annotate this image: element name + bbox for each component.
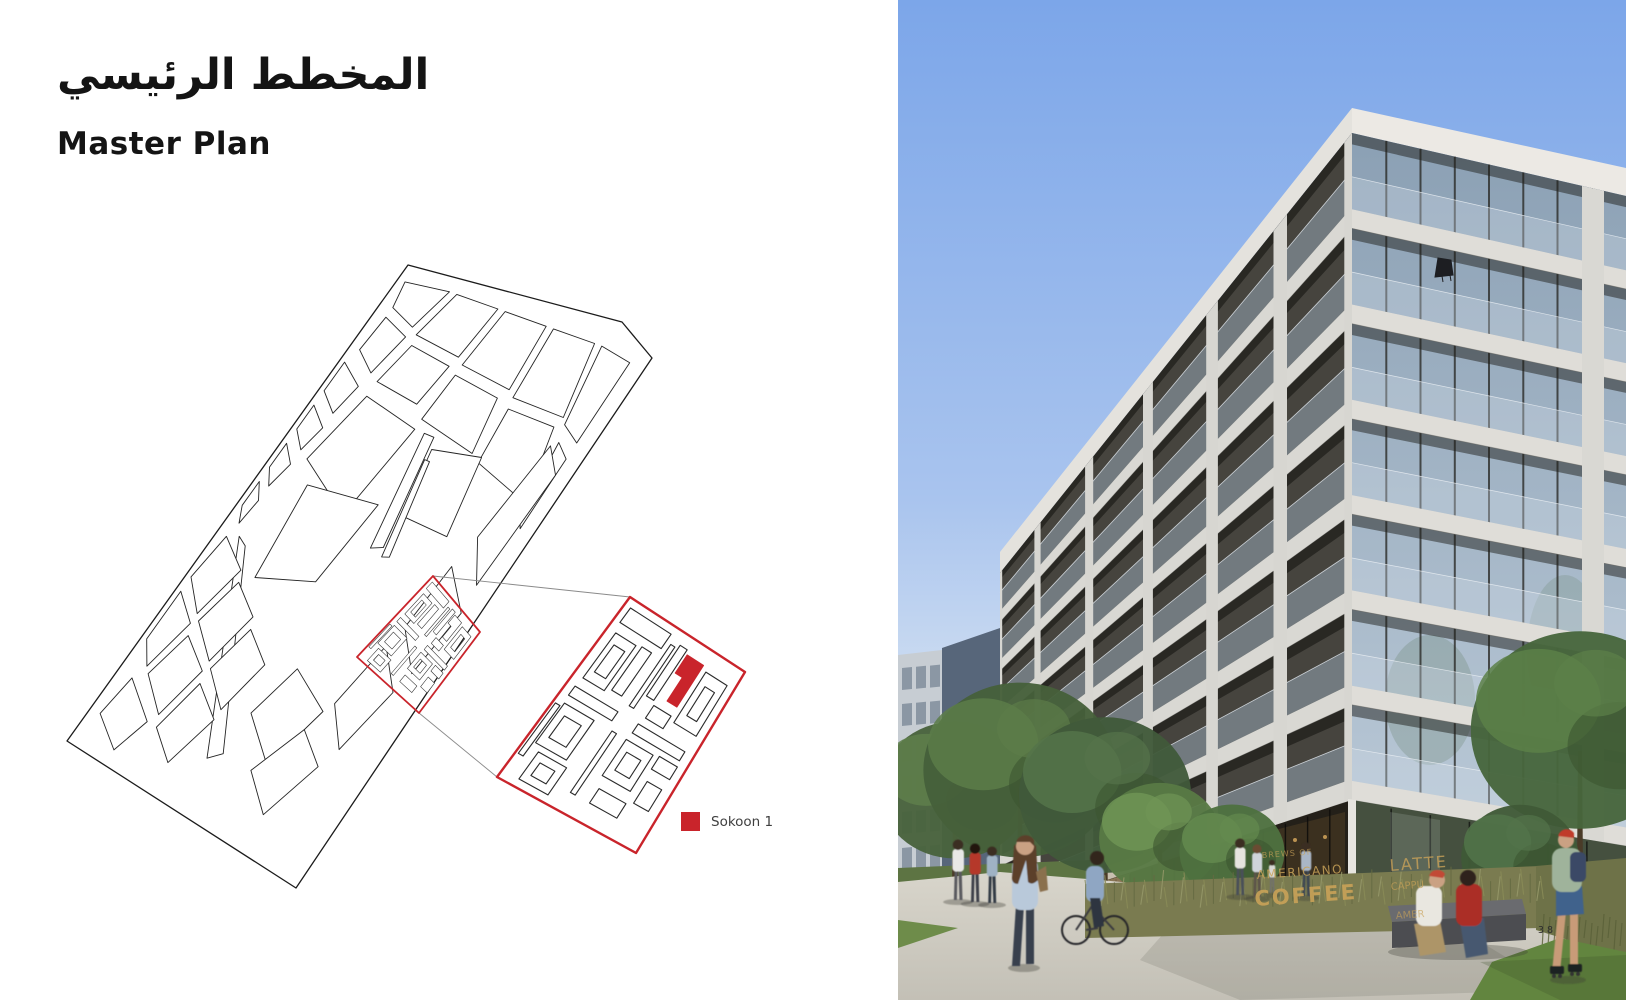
legend: Sokoon 1 — [681, 812, 773, 831]
building-render-photo: BREWS OF AMERICANO COFFEE LATTE CAPPU AM… — [898, 0, 1626, 1000]
master-plan-pane: المخطط الرئيسي Master Plan Sokoon 1 — [0, 0, 898, 1000]
brochure-page: المخطط الرئيسي Master Plan Sokoon 1 — [0, 0, 1626, 1000]
page-number: 38 — [1538, 925, 1556, 936]
sign-amer: AMER — [1395, 909, 1424, 922]
building-render-pane: BREWS OF AMERICANO COFFEE LATTE CAPPU AM… — [898, 0, 1626, 1000]
sign-latte: LATTE — [1389, 852, 1449, 875]
master-plan-drawing — [0, 0, 898, 1000]
legend-color-swatch — [681, 812, 700, 831]
sign-cappu: CAPPU — [1390, 880, 1424, 893]
legend-label: Sokoon 1 — [711, 814, 773, 830]
